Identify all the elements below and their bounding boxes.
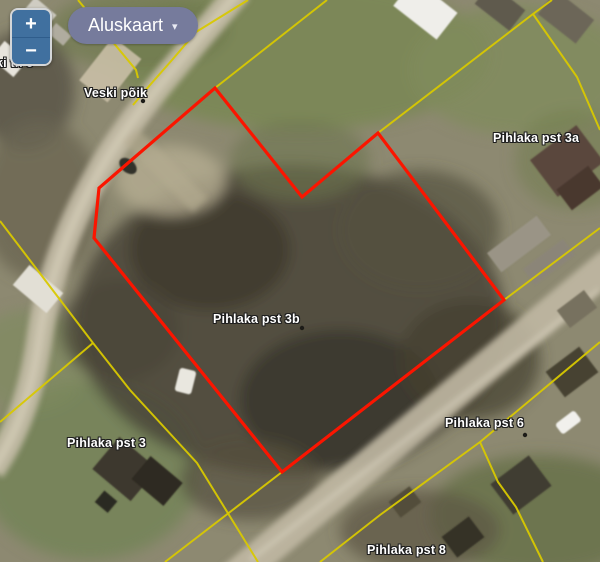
chevron-down-icon: ▾ bbox=[172, 20, 178, 33]
map-label-pihlaka-pst-8: Pihlaka pst 8 bbox=[367, 543, 446, 557]
map-label-pihlaka-pst-3b: Pihlaka pst 3b bbox=[213, 312, 300, 326]
basemap-button-label: Aluskaart bbox=[88, 15, 163, 36]
map-label-pihlaka-pst-3: Pihlaka pst 3 bbox=[67, 436, 146, 450]
map-label-pihlaka-pst-3a: Pihlaka pst 3a bbox=[493, 131, 579, 145]
aerial-imagery bbox=[0, 0, 600, 562]
zoom-in-button[interactable]: + bbox=[12, 10, 50, 37]
zoom-control: + − bbox=[10, 8, 52, 66]
map-viewport[interactable]: ki tn 9 Veski põik Pihlaka pst 3a Pihlak… bbox=[0, 0, 600, 562]
map-label-pihlaka-pst-6: Pihlaka pst 6 bbox=[445, 416, 524, 430]
map-label-veski-poik: Veski põik bbox=[84, 86, 147, 100]
basemap-dropdown-button[interactable]: Aluskaart ▾ bbox=[68, 7, 198, 44]
zoom-out-button[interactable]: − bbox=[12, 37, 50, 64]
